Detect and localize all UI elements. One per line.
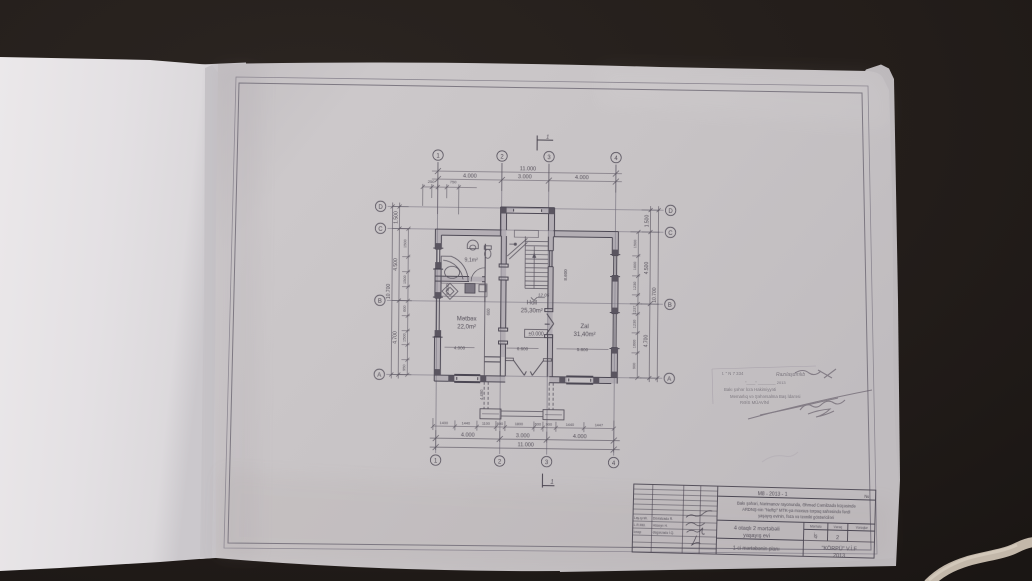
svg-text:250: 250 (428, 179, 435, 184)
svg-text:M8 - 2013 - 1: M8 - 2013 - 1 (758, 491, 788, 498)
svg-text:Lay.q.rəh.: Lay.q.rəh. (634, 516, 648, 520)
svg-text:Mətbəx: Mətbəx (457, 316, 477, 322)
svg-text:4.700: 4.700 (393, 331, 399, 344)
svg-text:D: D (668, 209, 673, 215)
svg-text:Dövlətzadə R.: Dövlətzadə R. (653, 517, 673, 522)
svg-text:600: 600 (535, 422, 541, 426)
svg-text:11.000: 11.000 (520, 166, 536, 172)
svg-text:İş: İş (814, 533, 819, 540)
svg-text:4.000: 4.000 (461, 432, 475, 438)
svg-text:950: 950 (402, 364, 406, 370)
svg-text:1600: 1600 (633, 262, 637, 271)
svg-text:4.490: 4.490 (479, 389, 484, 400)
svg-text:10.700: 10.700 (386, 284, 392, 300)
svg-text:RƏİS MÜAVİNİ: RƏİS MÜAVİNİ (740, 400, 769, 405)
svg-text:4.000: 4.000 (454, 345, 466, 350)
svg-text:31,40m²: 31,40m² (574, 332, 596, 338)
svg-text:600: 600 (497, 422, 503, 426)
svg-text:D: D (378, 205, 383, 211)
svg-text:Bakı şəhər İcra Hakimiyyəti: Bakı şəhər İcra Hakimiyyəti (724, 387, 776, 392)
svg-text:5.800: 5.800 (577, 347, 589, 352)
svg-text:1800: 1800 (515, 422, 523, 426)
svg-text:t. " N 7 334: t. " N 7 334 (722, 371, 744, 376)
svg-text:1230: 1230 (633, 320, 637, 329)
svg-text:1230: 1230 (633, 282, 637, 291)
svg-text:Vərəq: Vərəq (834, 525, 843, 529)
svg-text:4 otaqlı 2 mərtəbəli: 4 otaqlı 2 mərtəbəli (734, 526, 780, 533)
svg-text:3.000: 3.000 (516, 433, 530, 439)
svg-text:4.000: 4.000 (575, 175, 589, 181)
svg-text:1500: 1500 (403, 275, 407, 284)
svg-text:1: 1 (550, 480, 553, 486)
svg-text:Razılaşdırılıb: Razılaşdırılıb (776, 372, 805, 378)
svg-text:600: 600 (486, 308, 491, 316)
svg-text:C: C (668, 231, 673, 237)
svg-text:Holl: Holl (527, 300, 537, 306)
svg-text:A: A (667, 377, 671, 383)
svg-text:6.000: 6.000 (445, 283, 450, 295)
svg-text:12.05: 12.05 (538, 293, 550, 298)
svg-text:1500: 1500 (403, 333, 407, 342)
svg-text:600: 600 (403, 305, 407, 311)
svg-text:Vərəqlər: Vərəqlər (856, 526, 869, 530)
svg-text:C: C (378, 227, 383, 233)
svg-text:750: 750 (450, 179, 457, 184)
svg-text:1440: 1440 (462, 421, 470, 425)
svg-text:1500: 1500 (403, 239, 407, 248)
svg-text:İcraçı: İcraçı (634, 529, 642, 534)
svg-text:4.500: 4.500 (644, 262, 650, 275)
svg-text:±0.000: ±0.000 (528, 331, 544, 337)
svg-text:4.000: 4.000 (463, 173, 477, 179)
svg-text:№: № (864, 494, 869, 499)
svg-text:"____" ________ 2013: "____" ________ 2013 (745, 380, 786, 385)
svg-text:1: 1 (546, 135, 549, 141)
svg-text:L.R.Mül.: L.R.Mül. (634, 523, 646, 527)
svg-text:6.600: 6.600 (517, 346, 529, 351)
svg-text:22,0m²: 22,0m² (457, 324, 476, 330)
svg-text:1100: 1100 (482, 422, 490, 426)
svg-text:1440: 1440 (566, 423, 574, 427)
svg-text:1447: 1447 (595, 423, 603, 427)
svg-text:1400: 1400 (440, 421, 448, 425)
svg-text:yaşayış evi: yaşayış evi (743, 533, 770, 540)
svg-text:Mərhələ: Mərhələ (810, 524, 822, 528)
svg-text:4.700: 4.700 (644, 335, 650, 348)
svg-text:11.000: 11.000 (518, 442, 534, 448)
svg-text:1500: 1500 (633, 240, 637, 249)
svg-text:25,30m²: 25,30m² (521, 308, 543, 314)
svg-text:Memarlıq və Şəhərsalma Baş İda: Memarlıq və Şəhərsalma Baş İdarəsi (730, 394, 800, 399)
svg-text:Hüseyn H.: Hüseyn H. (653, 524, 668, 528)
svg-text:9,1m²: 9,1m² (465, 257, 479, 263)
svg-text:Əsgərzadə İ.Q.: Əsgərzadə İ.Q. (653, 530, 675, 536)
svg-text:1237: 1237 (633, 306, 637, 315)
svg-text:3.000: 3.000 (518, 174, 532, 180)
svg-text:4.500: 4.500 (393, 258, 399, 271)
svg-text:1.500: 1.500 (644, 215, 650, 228)
svg-text:B: B (378, 299, 382, 305)
svg-text:8.600: 8.600 (563, 269, 568, 281)
svg-text:1.500: 1.500 (393, 211, 399, 224)
svg-text:Zal: Zal (580, 324, 588, 330)
svg-text:4.000: 4.000 (573, 434, 587, 440)
svg-text:B: B (668, 303, 672, 309)
svg-text:1600: 1600 (633, 340, 637, 349)
svg-text:900: 900 (632, 363, 636, 369)
svg-text:900: 900 (546, 423, 552, 427)
svg-text:2013: 2013 (833, 553, 845, 559)
svg-text:A: A (377, 373, 381, 379)
svg-text:10.700: 10.700 (652, 287, 658, 303)
svg-text:1-ci mərtəbənin planı: 1-ci mərtəbənin planı (733, 546, 780, 553)
svg-text:"KÖRPÜ" V.İ.F: "KÖRPÜ" V.İ.F (821, 545, 857, 553)
svg-text:2: 2 (836, 535, 839, 541)
